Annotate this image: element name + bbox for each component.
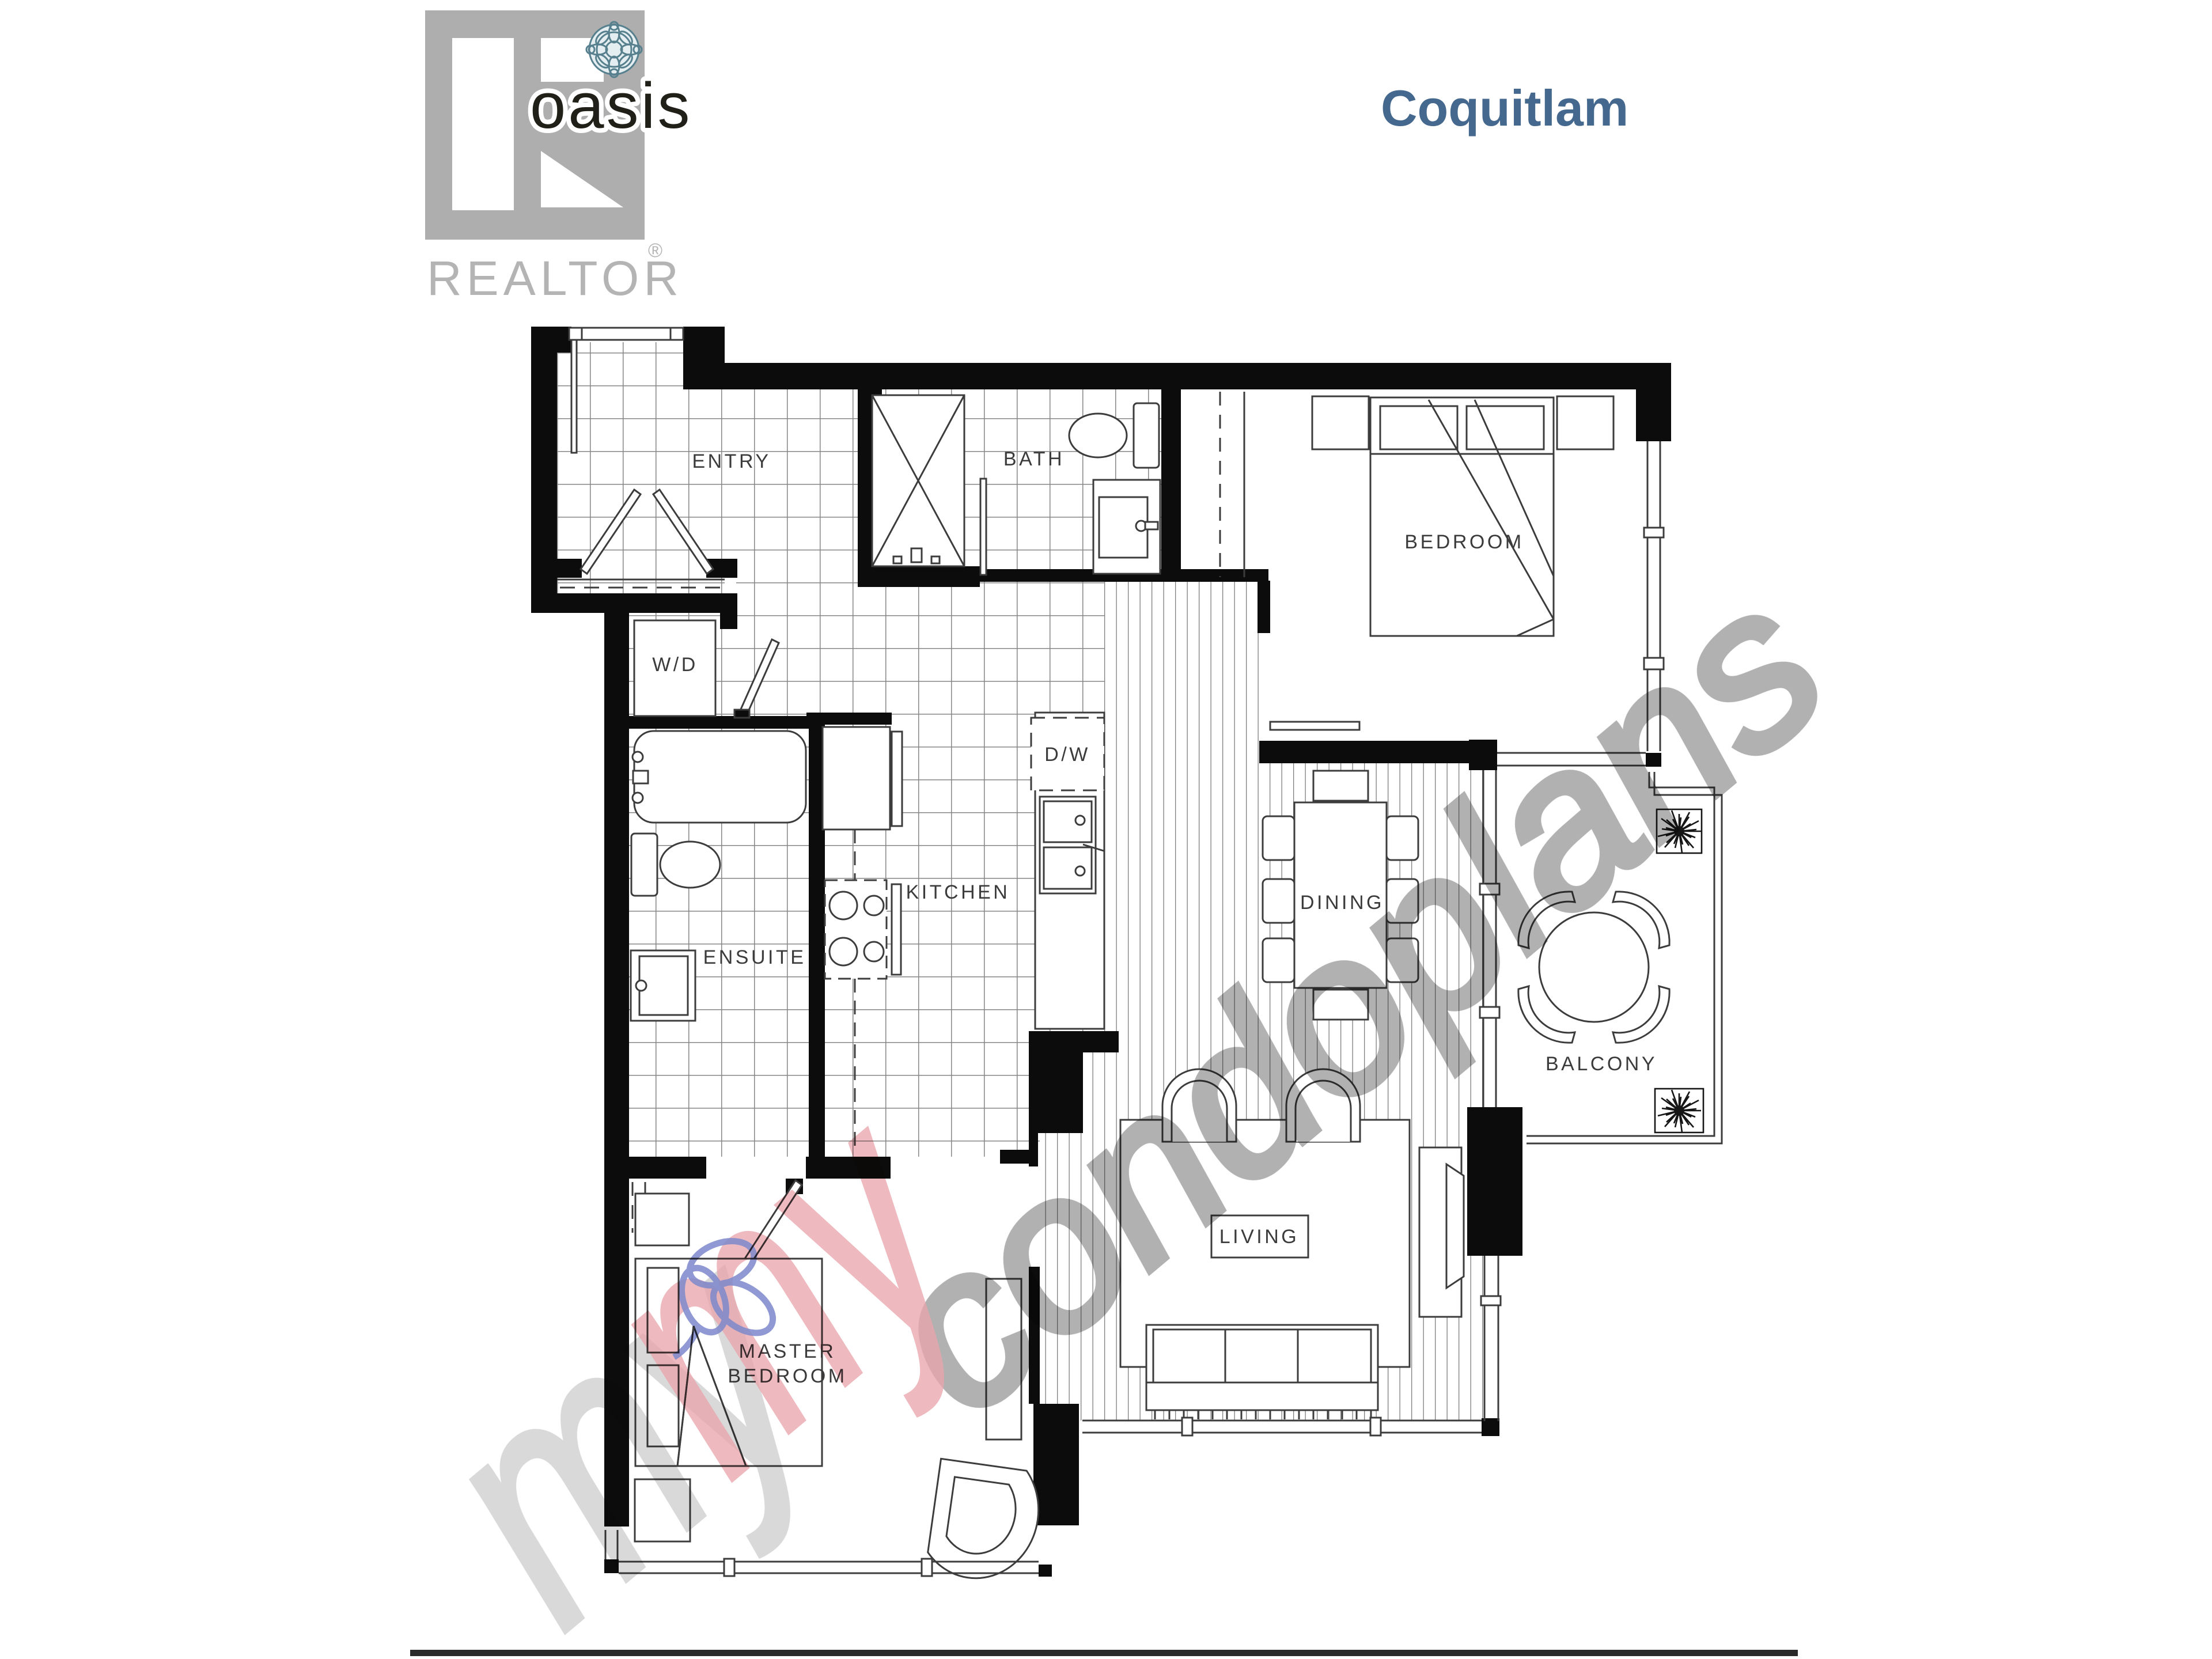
- svg-text:oasis: oasis: [530, 70, 692, 142]
- svg-text:Coquitlam: Coquitlam: [1381, 79, 1628, 137]
- svg-text:KITCHEN: KITCHEN: [906, 881, 1010, 903]
- svg-text:ENSUITE: ENSUITE: [703, 946, 806, 968]
- svg-text:BEDROOM: BEDROOM: [1404, 531, 1524, 553]
- svg-text:®: ®: [648, 240, 662, 262]
- svg-text:W/D: W/D: [652, 654, 698, 676]
- svg-text:REALTOR: REALTOR: [427, 251, 683, 305]
- svg-text:D/W: D/W: [1044, 744, 1090, 766]
- svg-text:ENTRY: ENTRY: [692, 450, 771, 472]
- svg-text:BATH: BATH: [1003, 448, 1065, 470]
- svg-text:BALCONY: BALCONY: [1546, 1053, 1657, 1075]
